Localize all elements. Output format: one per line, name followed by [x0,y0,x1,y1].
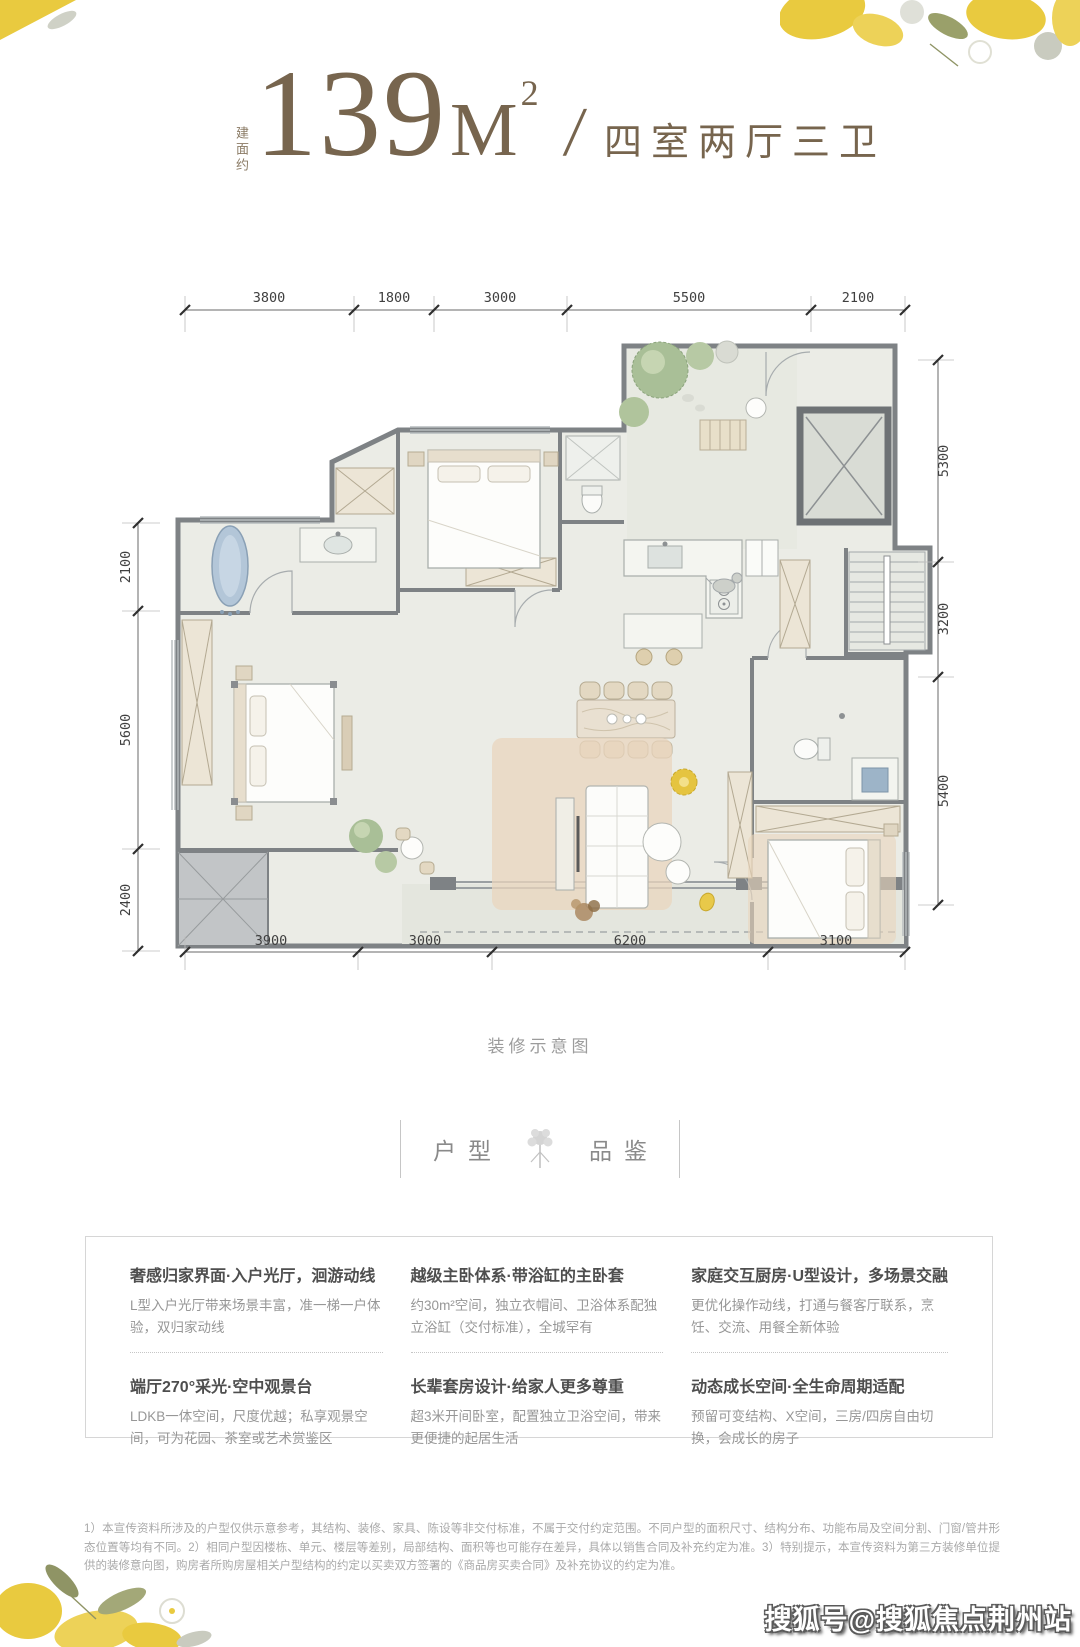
header-left-line [400,1120,401,1178]
svg-text:5600: 5600 [118,714,134,747]
svg-text:5300: 5300 [936,445,952,478]
feature-body: L型入户光厅带来场景丰富，准一梯一户体验，双归家动线 [130,1295,383,1338]
series-word-left: 户型 [421,1132,503,1166]
series-header: 户型 品鉴 [0,1120,1080,1178]
corner-decoration-top-left [0,0,95,52]
svg-text:6200: 6200 [614,933,647,949]
series-word-right: 品鉴 [577,1132,659,1166]
poster-page: 建面约 139 M 2 / 四室两厅三卫 [0,0,1080,1647]
basin [862,768,888,792]
planter-block [178,852,268,946]
feature-body: 预留可变结构、X空间，三房/四房自由切换，会成长的房子 [691,1406,948,1449]
master-bed [234,684,334,802]
svg-text:5500: 5500 [673,290,706,306]
svg-text:3000: 3000 [409,933,442,949]
feature-item: 长辈套房设计·给家人更多尊重 超3米开间卧室，配置独立卫浴空间，带来更便捷的起居… [411,1373,664,1449]
coffee-table [643,823,681,861]
feature-title: 奢感归家界面·入户光厅，洄游动线 [130,1262,383,1286]
plan-caption: 装修示意图 [0,1032,1080,1057]
bedroom-two [408,450,558,568]
feature-title: 端厅270°采光·空中观景台 [130,1373,383,1397]
area-exponent: 2 [521,72,539,114]
svg-text:2400: 2400 [118,884,134,917]
svg-text:5400: 5400 [936,775,952,808]
feature-body: LDKB一体空间，尺度优越；私享观景空间，可为花园、茶室或艺术赏鉴区 [130,1406,383,1449]
area-number: 139 [255,58,447,170]
dimension-left: 2100 5600 2400 [118,518,160,956]
svg-text:1800: 1800 [378,290,411,306]
feature-item: 动态成长空间·全生命周期适配 预留可变结构、X空间，三房/四房自由切换，会成长的… [691,1373,948,1449]
side-table [666,860,690,884]
master-bedroom [231,666,352,820]
dotted-divider [691,1352,948,1353]
svg-text:3000: 3000 [484,290,517,306]
stairwell [849,552,925,650]
kitchen-island [624,614,702,648]
rooms-layout-text: 四室两厅三卫 [604,111,886,166]
stool [666,649,682,665]
floorplan-svg: 3800 1800 3000 5500 2100 3900 3000 6200 … [100,280,960,1060]
toilet [794,739,818,759]
feature-column-3: 家庭交互厨房·U型设计，多场景交融 更优化操作动线，打通与餐客厅联系，烹饪、交流… [691,1262,948,1449]
feature-title: 动态成长空间·全生命周期适配 [691,1373,948,1397]
features-box: 奢感归家界面·入户光厅，洄游动线 L型入户光厅带来场景丰富，准一梯一户体验，双归… [85,1236,993,1438]
tv-console [556,798,574,890]
feature-title: 家庭交互厨房·U型设计，多场景交融 [691,1262,948,1286]
kitchen-sink [648,546,682,568]
svg-text:2100: 2100 [842,290,875,306]
svg-text:3800: 3800 [253,290,286,306]
tree-icon [523,1126,557,1172]
elevator-shaft [800,410,888,522]
plant [375,851,397,873]
area-unit: M [450,87,518,174]
built-area-label: 建面约 [232,126,251,174]
feature-item: 端厅270°采光·空中观景台 LDKB一体空间，尺度优越；私享观景空间，可为花园… [130,1373,383,1449]
dotted-divider [130,1352,383,1353]
feature-column-1: 奢感归家界面·入户光厅，洄游动线 L型入户光厅带来场景丰富，准一梯一户体验，双归… [130,1262,383,1449]
feature-title: 越级主卧体系·带浴缸的主卧套 [411,1262,664,1286]
svg-text:3900: 3900 [255,933,288,949]
feature-item: 越级主卧体系·带浴缸的主卧套 约30m²空间，独立衣帽间、卫浴体系配独立浴缸（交… [411,1262,664,1338]
stool [636,649,652,665]
svg-text:2100: 2100 [118,551,134,584]
bedroom-four [748,824,898,944]
title-slash: / [560,93,588,173]
feature-title: 长辈套房设计·给家人更多尊重 [411,1373,664,1397]
title-block: 建面约 139 M 2 / 四室两厅三卫 [232,58,886,188]
bush [619,397,649,427]
tree [686,342,714,370]
feature-item: 家庭交互厨房·U型设计，多场景交融 更优化操作动线，打通与餐客厅联系，烹饪、交流… [691,1262,948,1338]
bench [700,420,746,450]
flower [716,341,738,363]
dotted-divider [411,1352,664,1353]
watermark: 搜狐号@搜狐焦点荆州站 [765,1598,1072,1637]
disclaimer-text: 1）本宣传资料所涉及的户型仅供示意参考，其结构、装修、家具、陈设等非交付标准，不… [84,1520,1000,1576]
feature-item: 奢感归家界面·入户光厅，洄游动线 L型入户光厅带来场景丰富，准一梯一户体验，双归… [130,1262,383,1338]
feature-body: 超3米开间卧室，配置独立卫浴空间，带来更便捷的起居生活 [411,1406,664,1449]
feature-body: 更优化操作动线，打通与餐客厅联系，烹饪、交流、用餐全新体验 [691,1295,948,1338]
dimension-top: 3800 1800 3000 5500 2100 [180,290,910,332]
feature-body: 约30m²空间，独立衣帽间、卫浴体系配独立浴缸（交付标准），全城罕有 [411,1295,664,1338]
svg-text:3200: 3200 [936,603,952,636]
side-table [746,398,766,418]
header-right-line [679,1120,680,1178]
bench [342,716,352,770]
svg-text:3100: 3100 [820,933,853,949]
feature-column-2: 越级主卧体系·带浴缸的主卧套 约30m²空间，独立衣帽间、卫浴体系配独立浴缸（交… [411,1262,664,1449]
